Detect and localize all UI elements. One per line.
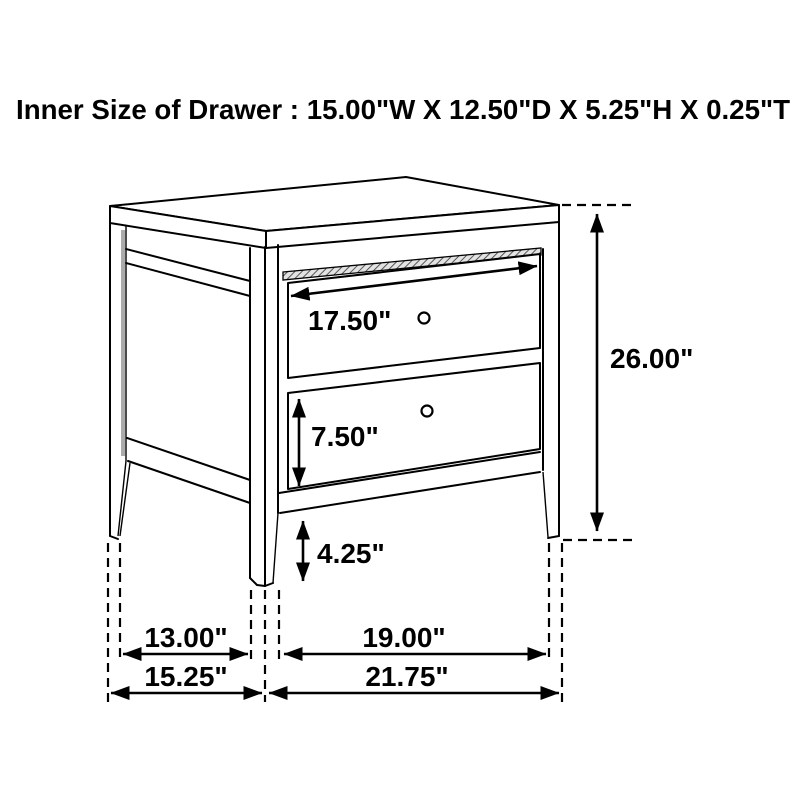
dim-label-front-leg-spacing: 19.00" — [362, 622, 445, 653]
side-top-rail-bottom — [126, 263, 250, 296]
back-left-leg — [110, 223, 130, 539]
side-bottom-rail-top — [127, 438, 250, 480]
front-left-leg — [250, 245, 278, 586]
dim-overall-width: 21.75" — [269, 661, 559, 693]
side-bottom-rail-bottom — [128, 461, 250, 503]
side-top-rail — [126, 249, 250, 281]
nightstand-dimension-diagram: Inner Size of Drawer : 15.00"W X 12.50"D… — [0, 0, 800, 800]
dim-leg-height: 4.25" — [303, 521, 385, 581]
dim-label-overall-depth: 15.25" — [144, 661, 227, 692]
dim-label-top-drawer-width: 17.50" — [308, 305, 391, 336]
tabletop — [110, 177, 559, 248]
front-right-leg — [543, 222, 559, 538]
dim-label-bottom-drawer-height: 7.50" — [311, 421, 379, 452]
dim-overall-depth: 15.25" — [111, 661, 262, 693]
dim-label-leg-height: 4.25" — [317, 538, 385, 569]
dim-label-side-leg-spacing: 13.00" — [144, 622, 227, 653]
dim-label-overall-height: 26.00" — [610, 343, 693, 374]
front-left-foot — [250, 578, 273, 586]
dim-label-overall-width: 21.75" — [365, 661, 448, 692]
nightstand-drawing — [110, 177, 559, 586]
top-drawer-knob — [419, 313, 430, 324]
diagram-canvas: Inner Size of Drawer : 15.00"W X 12.50"D… — [0, 0, 800, 800]
dim-overall-height: 26.00" — [562, 205, 693, 540]
dim-front-leg-spacing: 19.00" — [284, 622, 546, 654]
diagram-title: Inner Size of Drawer : 15.00"W X 12.50"D… — [16, 94, 790, 125]
left-side-panel — [126, 249, 250, 503]
bottom-drawer-knob — [422, 406, 433, 417]
dim-side-leg-spacing: 13.00" — [123, 622, 248, 654]
